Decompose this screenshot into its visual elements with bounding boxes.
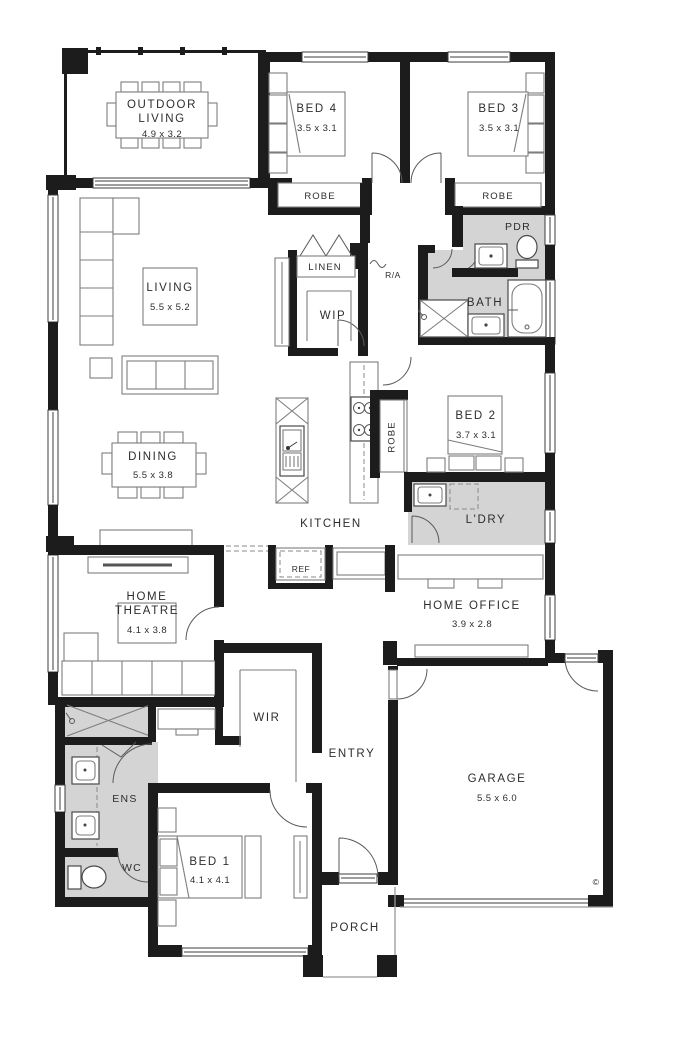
room-dims-home-office: 3.9 x 2.8 <box>452 618 492 632</box>
room-label-laundry: L'DRY <box>466 514 507 528</box>
dining-table <box>102 432 206 498</box>
room-label-outdoor-living: OUTDOOR LIVING <box>116 99 208 126</box>
room-label-living: LIVING <box>146 282 193 296</box>
room-dims-dining: 5.5 x 3.8 <box>133 469 173 483</box>
room-label-kitchen: KITCHEN <box>300 518 362 532</box>
room-label-linen: LINEN <box>308 261 341 275</box>
room-label-garage: GARAGE <box>468 773 527 787</box>
room-label-home-theatre: HOME THEATRE <box>110 591 184 618</box>
room-label-return-air: R/A <box>385 269 401 283</box>
room-label-bed3: BED 3 <box>478 103 519 117</box>
room-dims-outdoor-living: 4.9 x 3.2 <box>142 128 182 142</box>
room-label-wir: WIR <box>253 712 280 726</box>
room-label-bath: BATH <box>467 297 503 311</box>
room-dims-living: 5.5 x 5.2 <box>150 301 190 315</box>
walls-upper-mid <box>46 175 292 190</box>
room-label-bed2: BED 2 <box>455 410 496 424</box>
room-label-ens: ENS <box>112 793 138 807</box>
room-dims-home-theatre: 4.1 x 3.8 <box>127 624 167 638</box>
room-label-porch: PORCH <box>330 922 380 936</box>
copyright-mark: © <box>593 876 600 890</box>
room-label-robe-bed4: ROBE <box>304 190 335 204</box>
room-label-entry: ENTRY <box>329 748 376 762</box>
room-dims-bed3: 3.5 x 3.1 <box>479 122 519 136</box>
room-label-wc: WC <box>122 862 142 876</box>
room-dims-bed4: 3.5 x 3.1 <box>297 122 337 136</box>
room-label-pdr: PDR <box>505 221 531 235</box>
room-label-wip: WIP <box>320 310 347 324</box>
room-dims-bed1: 4.1 x 4.1 <box>190 874 230 888</box>
room-label-robe-bed3: ROBE <box>482 190 513 204</box>
room-label-ref: REF <box>292 563 311 577</box>
floor-plan: OUTDOOR LIVING 4.9 x 3.2 BED 4 3.5 x 3.1… <box>0 0 700 1045</box>
walls-left <box>46 178 74 705</box>
room-label-bed4: BED 4 <box>296 103 337 117</box>
room-dims-bed2: 3.7 x 3.1 <box>456 429 496 443</box>
room-label-bed1: BED 1 <box>189 856 230 870</box>
room-label-home-office: HOME OFFICE <box>423 600 520 614</box>
room-dims-garage: 5.5 x 6.0 <box>477 792 517 806</box>
room-label-robe-bed2: ROBE <box>385 421 399 452</box>
room-label-dining: DINING <box>128 451 178 465</box>
walls-right <box>545 52 555 658</box>
bed1-walls <box>148 783 322 957</box>
living-furniture <box>80 198 218 394</box>
